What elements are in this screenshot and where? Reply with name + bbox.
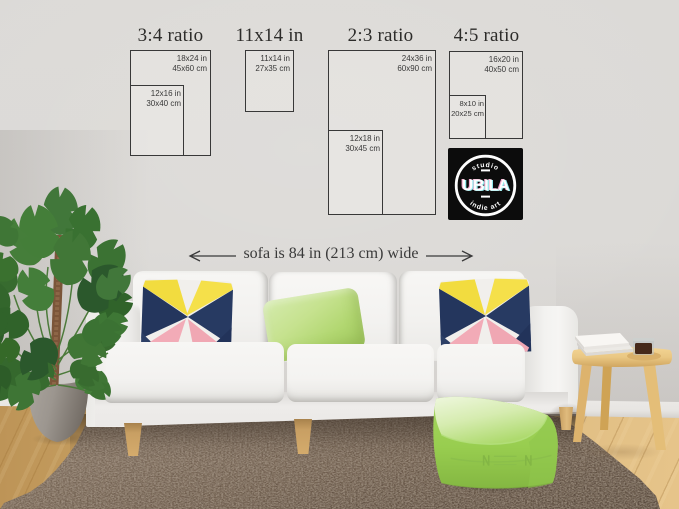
svg-text:indie art: indie art (468, 200, 502, 212)
svg-text:UBILA: UBILA (462, 178, 510, 195)
